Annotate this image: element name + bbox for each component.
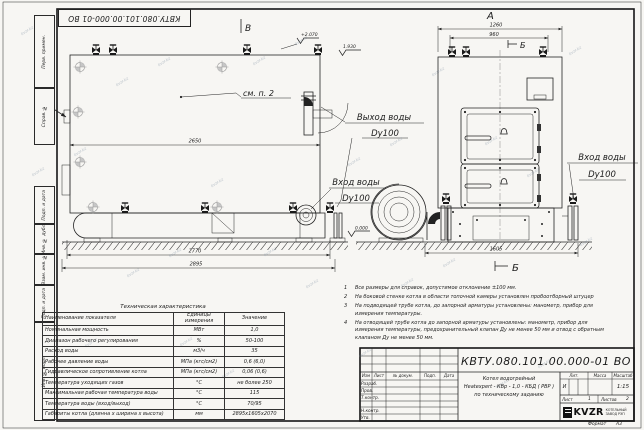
- role-prov: Пров.: [361, 388, 373, 393]
- note-number: 1: [344, 285, 355, 293]
- elevation-2070: +2.070: [301, 32, 318, 38]
- margin-label: Подп. и дата: [42, 190, 47, 221]
- note-text: На отводящей трубе котла до запорной арм…: [355, 320, 612, 343]
- table-row: Габариты котла (длинна х ширина х высота…: [43, 409, 285, 420]
- product-name-line1: Котел водогрейный: [458, 376, 560, 382]
- row-name: Номинальная мощность: [43, 325, 174, 336]
- tech-table-header: Наименование показателя Единицы измерени…: [43, 313, 285, 326]
- row-unit: °С: [174, 399, 225, 410]
- row-unit: МПа (кгс/см2): [174, 367, 225, 378]
- row-unit: МВт: [174, 325, 225, 336]
- col-name-header: Наименование показателя: [43, 313, 174, 326]
- note-item: 3На подводящей трубе котла, до запорной …: [344, 303, 612, 318]
- margin-box-perv-primen: Перв. примен.: [34, 15, 55, 88]
- kvzr-logo-mark: [563, 407, 572, 418]
- note-item: 4На отводящей трубе котла до запорной ар…: [344, 320, 612, 343]
- row-unit: МПа (кгс/см2): [174, 357, 225, 368]
- table-row: Максимальная рабочая температура воды°С1…: [43, 388, 285, 399]
- table-row: Температура уходящих газов°Сне более 250: [43, 378, 285, 389]
- kvzr-logo-text: KVZR: [574, 407, 604, 418]
- blower-fan: [371, 184, 440, 242]
- table-row: Гидравлическое сопротивление котлаМПа (к…: [43, 367, 285, 378]
- row-value: 2895х1605х2070: [225, 409, 285, 420]
- front-view: А 1260 960 Б: [425, 11, 578, 274]
- row-value: 1,0: [225, 325, 285, 336]
- tech-table-title: Техническая характеристика: [42, 304, 284, 310]
- sheet-label: Лист: [562, 397, 573, 402]
- table-row: Расход водым3/ч35: [43, 346, 285, 357]
- margin-label: Взам. инв. №: [42, 254, 47, 285]
- view-a-label: А: [486, 11, 494, 22]
- row-value: не более 250: [225, 378, 285, 389]
- margin-box-podp-data-1: Подп. и дата: [34, 186, 55, 224]
- rotated-doc-number-stamp: КВТУ.080.101.00.000-01 ВО: [58, 9, 191, 27]
- scale-value: 1:15: [612, 384, 634, 390]
- drawing-sheet: kvzr.kzkvzr.kzkvzr.kzkvzr.kzkvzr.kzkvzr.…: [0, 0, 644, 430]
- dim-960: 960: [489, 32, 499, 38]
- label-water-outlet: Выход воды: [357, 113, 411, 123]
- rotated-doc-number: КВТУ.080.101.00.000-01 ВО: [68, 14, 180, 23]
- role-nkontr: Н.контр.: [361, 408, 380, 413]
- note-number: 4: [344, 320, 355, 343]
- tech-table: Наименование показателя Единицы измерени…: [42, 312, 285, 420]
- see-note-label: см. п. 2: [243, 89, 274, 98]
- row-name: Температура уходящих газов: [43, 378, 174, 389]
- margin-label: Перв. примен.: [42, 35, 47, 69]
- table-row: Диапазон рабочего регулирования%50-100: [43, 336, 285, 347]
- row-name: Гидравлическое сопротивление котла: [43, 367, 174, 378]
- row-name: Температура воды (вход/выход): [43, 399, 174, 410]
- elevation-0000: 0.000: [355, 226, 368, 232]
- dim-1260: 1260: [490, 23, 503, 29]
- note-number: 3: [344, 303, 355, 318]
- lit-value: И: [560, 384, 569, 390]
- role-tkontr: Т.контр.: [361, 395, 379, 400]
- row-value: 0,06 (0,6): [225, 367, 285, 378]
- side-view: 2650 см. п. 2 В А +2.070 1.930 0.000 27: [47, 19, 370, 272]
- hdr-lit: Лит.: [560, 373, 588, 378]
- row-value: 35: [225, 346, 285, 357]
- hdr-list: Лист: [372, 373, 386, 378]
- margin-label: Справ. №: [42, 105, 47, 127]
- product-name-line2: Heatexpert - КВр - 1,0 - КБД ( РВР ): [458, 384, 560, 390]
- row-value: 115: [225, 388, 285, 399]
- label-water-inlet-left-dn: Dy100: [342, 194, 370, 204]
- notes-list: 1Все размеры для справок, допустимое отк…: [344, 285, 612, 344]
- row-name: Максимальная рабочая температура воды: [43, 388, 174, 399]
- kvzr-logo: KVZR КОТЕЛЬНЫЙ ЗАВОД РЭП: [563, 404, 633, 420]
- sheet-value: 1: [588, 397, 591, 402]
- format-label: Формат: [588, 422, 606, 427]
- table-row: Температура воды (вход/выход)°С70/95: [43, 399, 285, 410]
- hdr-massa: Масса: [588, 373, 612, 378]
- note-item: 1Все размеры для справок, допустимое отк…: [344, 285, 612, 293]
- row-name: Диапазон рабочего регулирования: [43, 336, 174, 347]
- hdr-masshtab: Масштаб: [612, 373, 634, 378]
- table-row: Номинальная мощностьМВт1,0: [43, 325, 285, 336]
- row-unit: °С: [174, 378, 225, 389]
- margin-label: Инв. № дубл.: [42, 223, 47, 254]
- section-b-bottom: Б: [512, 263, 519, 274]
- note-item: 2На боковой стенке котла в области топоч…: [344, 294, 612, 302]
- row-value: 70/95: [225, 399, 285, 410]
- margin-box-vzam-inv: Взам. инв. №: [34, 254, 55, 285]
- row-name: Расход воды: [43, 346, 174, 357]
- role-razrab: Разраб.: [361, 381, 377, 386]
- row-name: Габариты котла (длинна х ширина х высота…: [43, 409, 174, 420]
- note-text: На боковой стенке котла в области топочн…: [355, 294, 612, 302]
- elevation-1930: 1.930: [343, 44, 356, 50]
- margin-box-inv-dubl: Инв. № дубл.: [34, 224, 55, 254]
- pipe-labels: Выход воды Dy100 Вход воды Dy100 Вход во…: [311, 107, 638, 209]
- row-unit: м3/ч: [174, 346, 225, 357]
- note-text: На подводящей трубе котла, до запорной а…: [355, 303, 612, 318]
- hdr-podp: Подп.: [420, 373, 440, 378]
- margin-box-sprav-no: Справ. №: [34, 88, 55, 145]
- row-name: Рабочее давление воды: [43, 357, 174, 368]
- dim-2895: 2895: [190, 262, 203, 268]
- format-value: А3: [616, 422, 622, 427]
- note-text: Все размеры для справок, допустимое откл…: [355, 285, 612, 293]
- product-name-line3: по техническому заданию: [458, 392, 560, 398]
- row-unit: %: [174, 336, 225, 347]
- col-value-header: Значение: [225, 313, 285, 326]
- hdr-izm: Изм: [360, 373, 372, 378]
- sheets-label: Листов: [601, 397, 617, 402]
- hdr-data: Дата: [440, 373, 458, 378]
- view-b-marker: В: [245, 24, 251, 34]
- logo-caption-line2: ЗАВОД РЭП: [606, 412, 625, 416]
- table-row: Рабочее давление водыМПа (кгс/см2)0,6 (6…: [43, 357, 285, 368]
- label-water-inlet-left: Вход воды: [332, 178, 380, 188]
- role-utv: Утв.: [361, 415, 370, 420]
- tech-characteristics: Техническая характеристика Наименование …: [42, 304, 284, 420]
- kvzr-logo-caption: КОТЕЛЬНЫЙ ЗАВОД РЭП: [606, 408, 627, 416]
- row-unit: мм: [174, 409, 225, 420]
- row-value: 50-100: [225, 336, 285, 347]
- label-water-outlet-dn: Dy100: [371, 129, 399, 139]
- ground-hatch: [62, 242, 592, 250]
- title-block-doc-number: КВТУ.080.101.00.000-01 ВО: [458, 355, 634, 368]
- note-number: 2: [344, 294, 355, 302]
- hdr-docum: № докум.: [386, 373, 420, 378]
- row-value: 0,6 (6,0): [225, 357, 285, 368]
- row-unit: °С: [174, 388, 225, 399]
- col-unit-header: Единицы измерения: [174, 313, 225, 326]
- label-water-inlet-right: Вход воды: [578, 153, 626, 163]
- section-b-top: Б: [520, 41, 526, 50]
- label-water-inlet-right-dn: Dy100: [588, 170, 616, 180]
- dim-2650: 2650: [189, 139, 202, 145]
- sheets-value: 2: [626, 397, 629, 402]
